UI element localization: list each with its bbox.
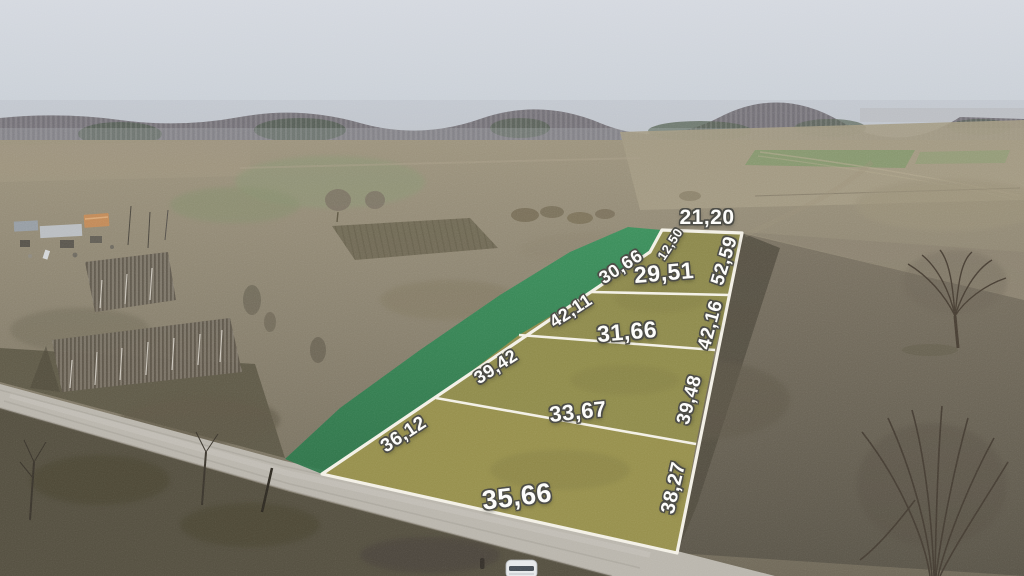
dim-plot1-front-width: 29,51 (633, 257, 695, 289)
dim-far-top-width: 21,20 (679, 206, 734, 230)
dim-plot2-front-width: 31,66 (596, 316, 658, 348)
aerial-land-plot-photo: 21,20 12,50 30,66 29,51 52,59 42,11 31,6… (0, 0, 1024, 576)
